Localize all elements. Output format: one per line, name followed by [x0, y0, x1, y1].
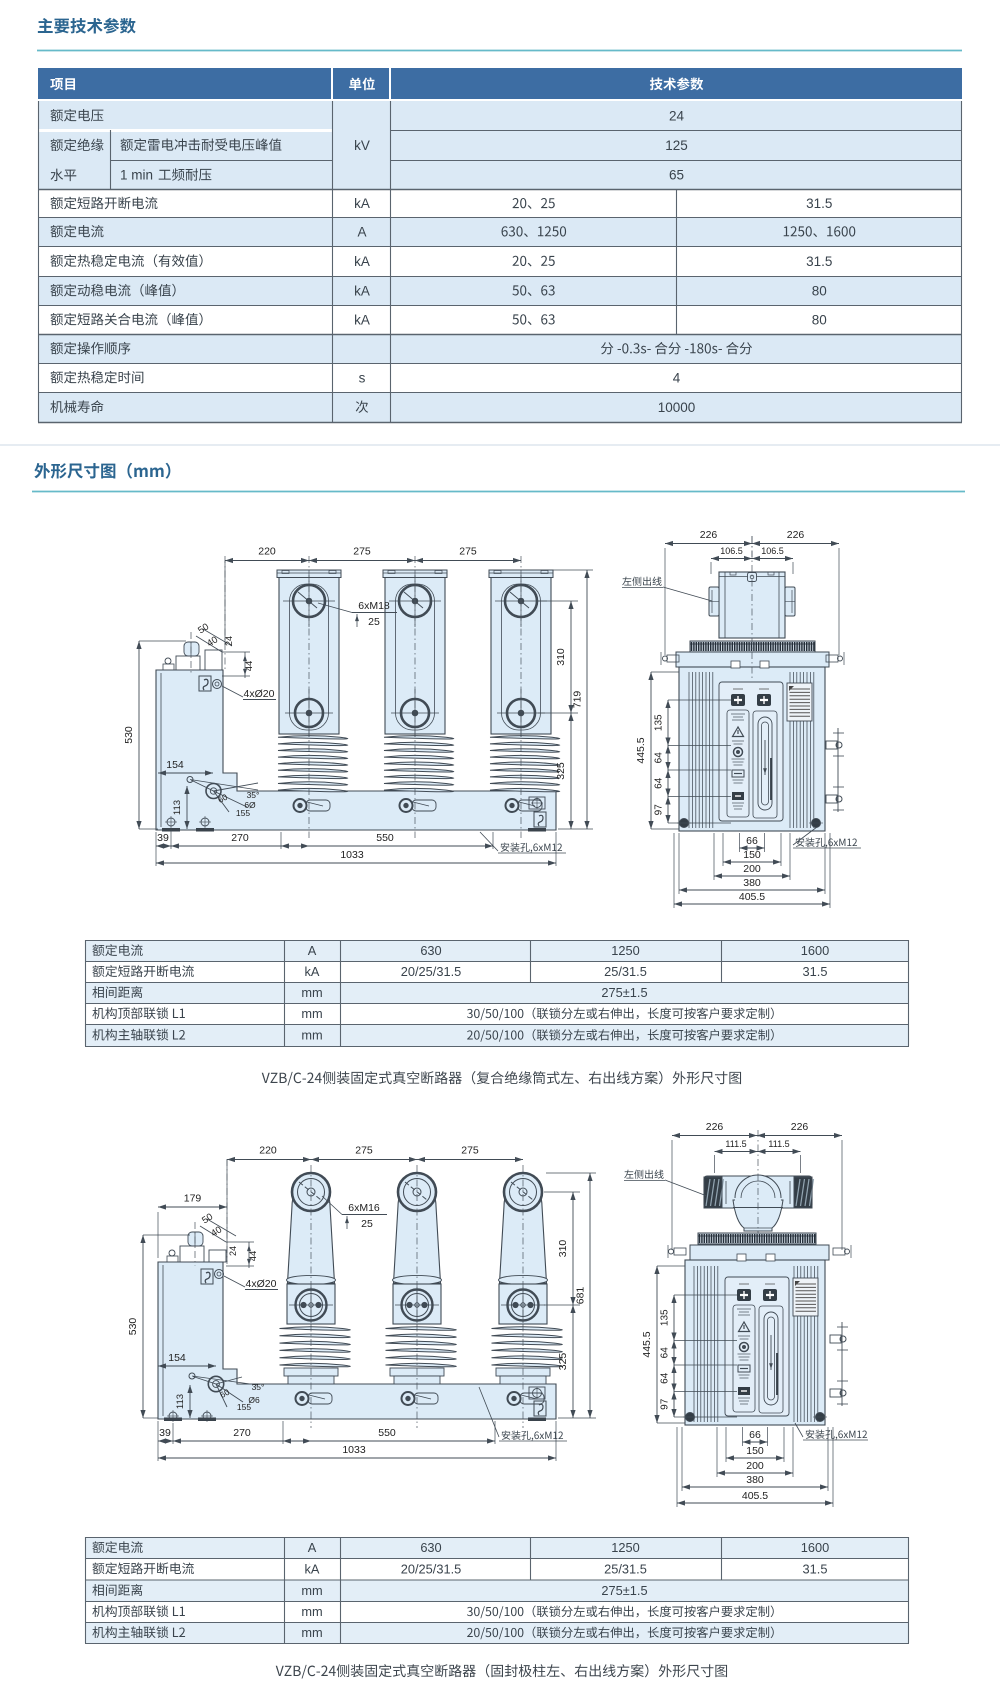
svg-text:135: 135 [660, 1309, 671, 1326]
svg-text:113: 113 [175, 1394, 186, 1409]
svg-text:35°: 35° [252, 1382, 265, 1392]
svg-text:66: 66 [749, 1429, 761, 1441]
svg-text:mm: mm [301, 1028, 322, 1043]
svg-text:10000: 10000 [658, 400, 696, 415]
svg-text:kA: kA [354, 196, 370, 211]
svg-text:kA: kA [354, 283, 370, 298]
svg-text:kA: kA [305, 964, 320, 979]
svg-text:200: 200 [746, 1460, 764, 1472]
svg-text:719: 719 [572, 691, 584, 709]
svg-text:1033: 1033 [340, 849, 364, 861]
svg-text:150: 150 [746, 1445, 764, 1457]
svg-text:310: 310 [557, 1240, 569, 1258]
svg-text:65: 65 [669, 168, 684, 183]
svg-text:66: 66 [746, 835, 758, 847]
svg-text:113: 113 [172, 800, 183, 815]
svg-text:405.5: 405.5 [739, 891, 765, 903]
svg-text:630: 630 [420, 943, 441, 958]
svg-text:A: A [357, 224, 366, 239]
svg-text:20/25/31.5: 20/25/31.5 [401, 964, 462, 979]
svg-text:24: 24 [669, 108, 685, 123]
svg-text:4xØ20: 4xØ20 [244, 688, 275, 700]
svg-text:25: 25 [361, 1218, 373, 1230]
svg-text:39: 39 [159, 1427, 171, 1439]
svg-text:kA: kA [305, 1561, 320, 1576]
svg-text:380: 380 [746, 1474, 764, 1486]
svg-text:220: 220 [259, 1145, 277, 1157]
svg-text:106.5: 106.5 [720, 546, 743, 556]
svg-text:1600: 1600 [801, 1540, 829, 1555]
svg-text:31.5: 31.5 [806, 254, 832, 269]
svg-text:325: 325 [555, 762, 567, 780]
svg-text:200: 200 [743, 863, 761, 875]
svg-text:6xM18: 6xM18 [358, 600, 390, 612]
svg-text:275: 275 [355, 1145, 373, 1157]
svg-text:155: 155 [236, 808, 250, 818]
svg-text:150: 150 [743, 849, 761, 861]
svg-text:64: 64 [654, 777, 665, 789]
svg-text:405.5: 405.5 [742, 1490, 768, 1502]
svg-text:179: 179 [184, 1193, 202, 1205]
svg-text:kV: kV [354, 138, 370, 153]
svg-text:64: 64 [654, 752, 665, 764]
svg-text:106.5: 106.5 [761, 546, 784, 556]
svg-text:24: 24 [224, 636, 234, 646]
svg-text:220: 220 [258, 546, 276, 558]
svg-text:6xM16: 6xM16 [348, 1202, 380, 1214]
svg-text:445.5: 445.5 [635, 737, 647, 763]
svg-text:s: s [359, 370, 366, 385]
svg-text:64: 64 [660, 1372, 671, 1384]
svg-text:226: 226 [791, 1121, 809, 1133]
svg-text:226: 226 [787, 529, 805, 541]
svg-text:97: 97 [660, 1398, 671, 1410]
svg-text:31.5: 31.5 [803, 964, 828, 979]
svg-text:kA: kA [354, 312, 370, 327]
svg-text:681: 681 [575, 1287, 587, 1305]
svg-text:35°: 35° [247, 790, 260, 800]
svg-text:mm: mm [301, 1625, 322, 1640]
svg-text:25/31.5: 25/31.5 [604, 1561, 647, 1576]
svg-text:A: A [308, 1540, 317, 1555]
svg-text:550: 550 [378, 1427, 396, 1439]
svg-text:111.5: 111.5 [768, 1139, 789, 1149]
svg-text:mm: mm [301, 1583, 322, 1598]
svg-text:25: 25 [368, 616, 380, 628]
svg-text:1250: 1250 [611, 1540, 639, 1555]
svg-text:550: 550 [376, 832, 394, 844]
svg-text:31.5: 31.5 [803, 1561, 828, 1576]
svg-text:275: 275 [459, 546, 477, 558]
svg-text:44: 44 [248, 1251, 259, 1262]
svg-text:226: 226 [700, 529, 718, 541]
svg-text:mm: mm [301, 1604, 322, 1619]
svg-text:135: 135 [654, 714, 665, 731]
svg-text:310: 310 [555, 648, 567, 666]
svg-text:24: 24 [228, 1246, 238, 1256]
svg-text:530: 530 [123, 726, 135, 744]
svg-text:270: 270 [233, 1427, 251, 1439]
svg-text:125: 125 [665, 138, 688, 153]
svg-text:154: 154 [166, 759, 184, 771]
svg-text:270: 270 [231, 832, 249, 844]
svg-text:111.5: 111.5 [725, 1139, 746, 1149]
svg-text:155: 155 [237, 1402, 251, 1412]
svg-text:275±1.5: 275±1.5 [601, 1583, 647, 1598]
svg-text:275±1.5: 275±1.5 [601, 985, 647, 1000]
svg-text:mm: mm [301, 985, 322, 1000]
svg-text:275: 275 [461, 1145, 479, 1157]
svg-text:325: 325 [557, 1353, 569, 1371]
svg-text:25/31.5: 25/31.5 [604, 964, 647, 979]
svg-text:154: 154 [168, 1352, 186, 1364]
svg-text:445.5: 445.5 [641, 1331, 653, 1357]
svg-text:4xØ20: 4xØ20 [246, 1278, 277, 1290]
svg-text:380: 380 [743, 877, 761, 889]
svg-text:275: 275 [353, 546, 371, 558]
svg-text:80: 80 [812, 312, 827, 327]
svg-text:4: 4 [673, 370, 681, 385]
svg-text:1600: 1600 [801, 943, 829, 958]
svg-text:530: 530 [127, 1318, 139, 1336]
svg-text:44: 44 [244, 661, 255, 672]
svg-text:630: 630 [420, 1540, 441, 1555]
svg-text:kA: kA [354, 254, 370, 269]
svg-text:64: 64 [660, 1347, 671, 1359]
svg-text:80: 80 [812, 283, 827, 298]
svg-text:97: 97 [654, 804, 665, 816]
svg-text:39: 39 [157, 832, 169, 844]
svg-text:31.5: 31.5 [806, 196, 832, 211]
svg-text:20/25/31.5: 20/25/31.5 [401, 1561, 462, 1576]
svg-text:A: A [308, 943, 317, 958]
svg-text:1033: 1033 [342, 1444, 366, 1456]
svg-text:mm: mm [301, 1006, 322, 1021]
svg-text:1250: 1250 [611, 943, 639, 958]
svg-text:1 min: 1 min [120, 168, 153, 183]
svg-text:226: 226 [706, 1121, 724, 1133]
